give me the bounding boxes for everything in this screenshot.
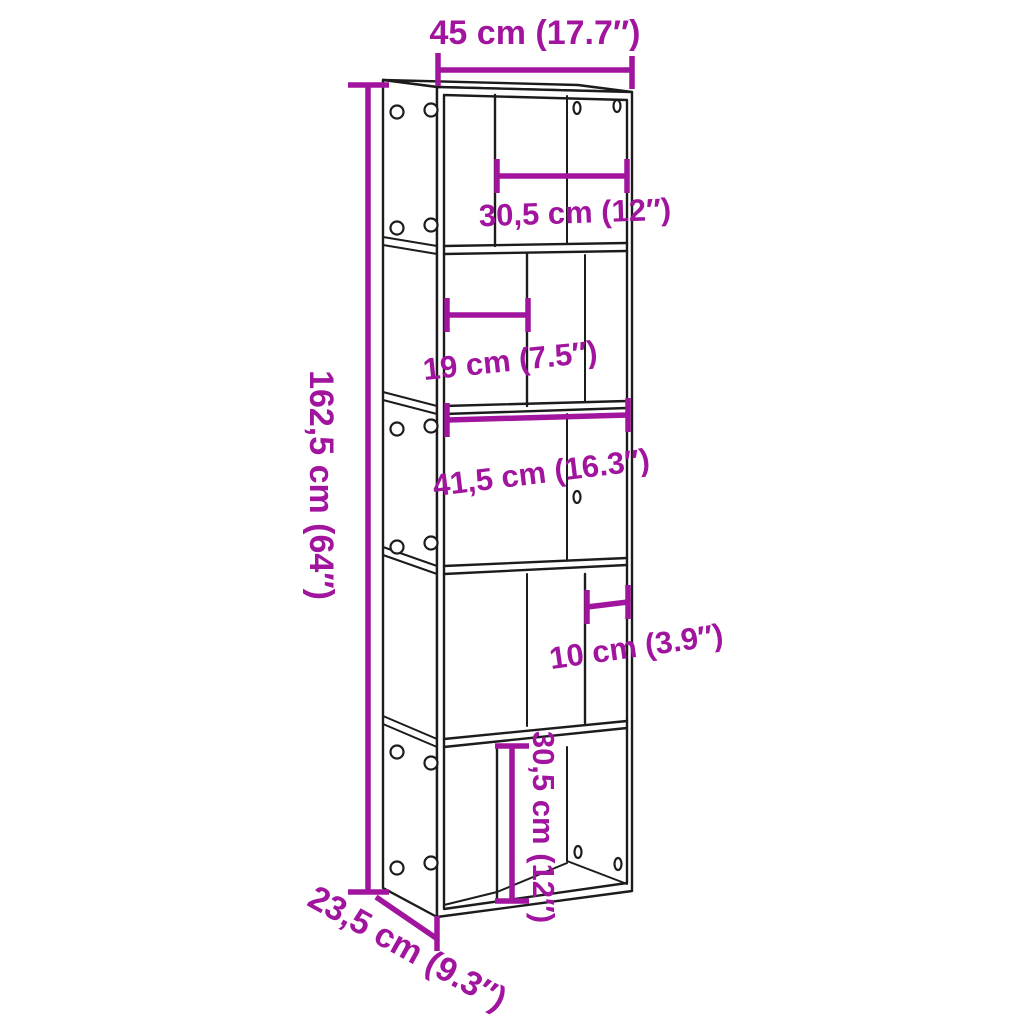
dim-label-height-total: 162,5 cm (64″) xyxy=(302,370,340,600)
bookcase-dimension-diagram: 45 cm (17.7″) 30,5 cm (12″) 19 cm (7.5″)… xyxy=(0,0,1024,1024)
bookcase-side-panel xyxy=(383,80,437,917)
dim-label-tier5: 30,5 cm (12″) xyxy=(526,731,561,923)
product-dimension-image: 45 cm (17.7″) 30,5 cm (12″) 19 cm (7.5″)… xyxy=(0,0,1024,1024)
dim-label-width-total: 45 cm (17.7″) xyxy=(430,14,641,52)
dim-label-tier1: 30,5 cm (12″) xyxy=(478,192,671,234)
